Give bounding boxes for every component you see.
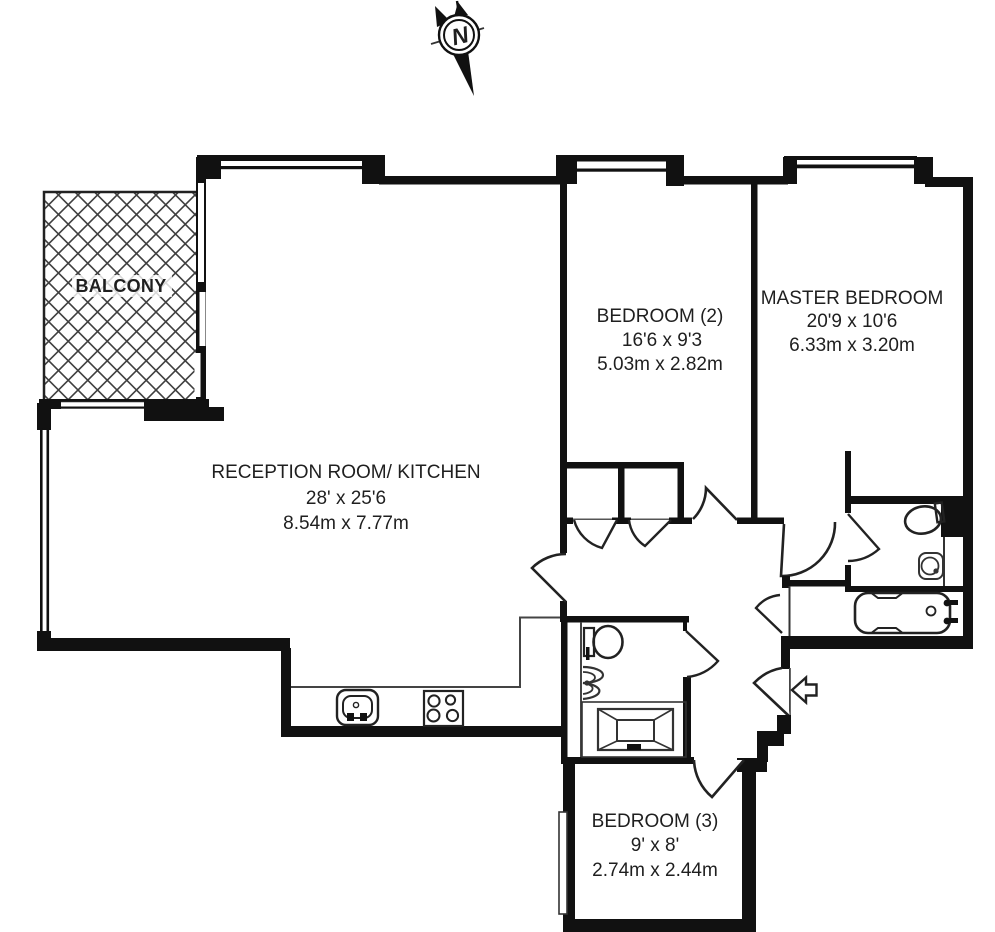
svg-text:2.74m x 2.44m: 2.74m x 2.44m — [592, 860, 718, 881]
svg-text:5.03m x 2.82m: 5.03m x 2.82m — [597, 354, 723, 375]
svg-text:RECEPTION ROOM/ KITCHEN: RECEPTION ROOM/ KITCHEN — [211, 462, 480, 483]
svg-text:BALCONY: BALCONY — [75, 276, 166, 296]
svg-text:9' x 8': 9' x 8' — [631, 835, 679, 856]
svg-text:MASTER BEDROOM: MASTER BEDROOM — [761, 288, 944, 309]
svg-text:28' x 25'6: 28' x 25'6 — [306, 488, 386, 509]
svg-text:6.33m x 3.20m: 6.33m x 3.20m — [789, 335, 915, 356]
svg-text:16'6 x 9'3: 16'6 x 9'3 — [622, 330, 702, 351]
svg-text:8.54m x 7.77m: 8.54m x 7.77m — [283, 513, 409, 534]
svg-text:20'9 x 10'6: 20'9 x 10'6 — [807, 311, 898, 332]
svg-text:BEDROOM (2): BEDROOM (2) — [597, 306, 724, 327]
svg-text:BEDROOM (3): BEDROOM (3) — [592, 811, 719, 832]
